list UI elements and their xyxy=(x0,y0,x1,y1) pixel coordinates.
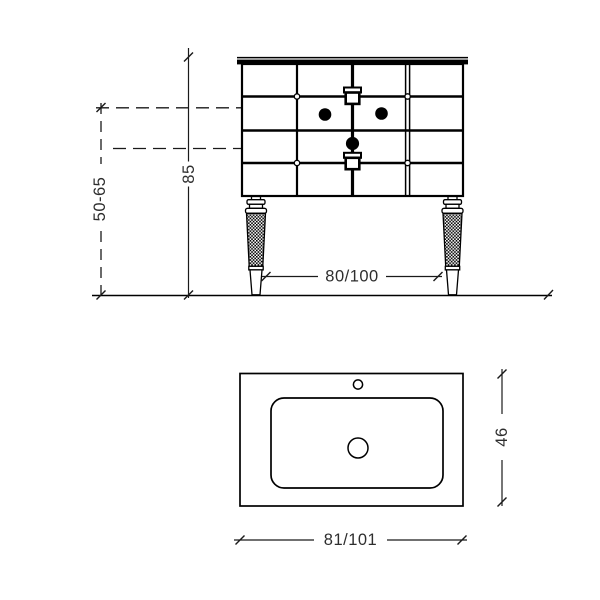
dimension-leg-spacing: 80/100 xyxy=(262,268,443,286)
hole-marker-left xyxy=(319,108,332,121)
dimension-width: 81/101 xyxy=(234,531,467,549)
hole-marker-right xyxy=(375,107,388,120)
drain-hole-icon xyxy=(348,438,368,458)
dimension-height-range: 50-65 xyxy=(91,103,109,300)
cam-fitting-icon xyxy=(294,94,299,99)
faucet-hole-icon xyxy=(353,380,362,389)
cam-fitting-icon xyxy=(405,94,410,99)
cam-fitting-icon xyxy=(405,160,410,165)
cam-fitting-icon xyxy=(294,160,299,165)
hole-marker-center xyxy=(346,137,359,150)
cabinet-body xyxy=(242,64,463,196)
right-leg xyxy=(442,197,463,295)
drawer-handle-top xyxy=(344,88,361,104)
dim-height-range-label: 50-65 xyxy=(91,177,109,222)
front-elevation-view: 50-65 85 xyxy=(91,48,553,300)
dim-overall-height-label: 85 xyxy=(180,164,198,183)
dim-depth-label: 46 xyxy=(493,427,511,446)
dim-width-label: 81/101 xyxy=(324,531,377,549)
drawer-handle-bottom xyxy=(344,153,361,169)
dimension-depth: 46 xyxy=(493,369,511,507)
dim-leg-spacing-label: 80/100 xyxy=(325,268,378,286)
top-plan-view: 46 81/101 xyxy=(234,369,511,549)
dimension-overall-height: 85 xyxy=(180,48,198,300)
drawing-canvas: 50-65 85 xyxy=(0,0,600,600)
technical-drawing: 50-65 85 xyxy=(0,0,600,600)
